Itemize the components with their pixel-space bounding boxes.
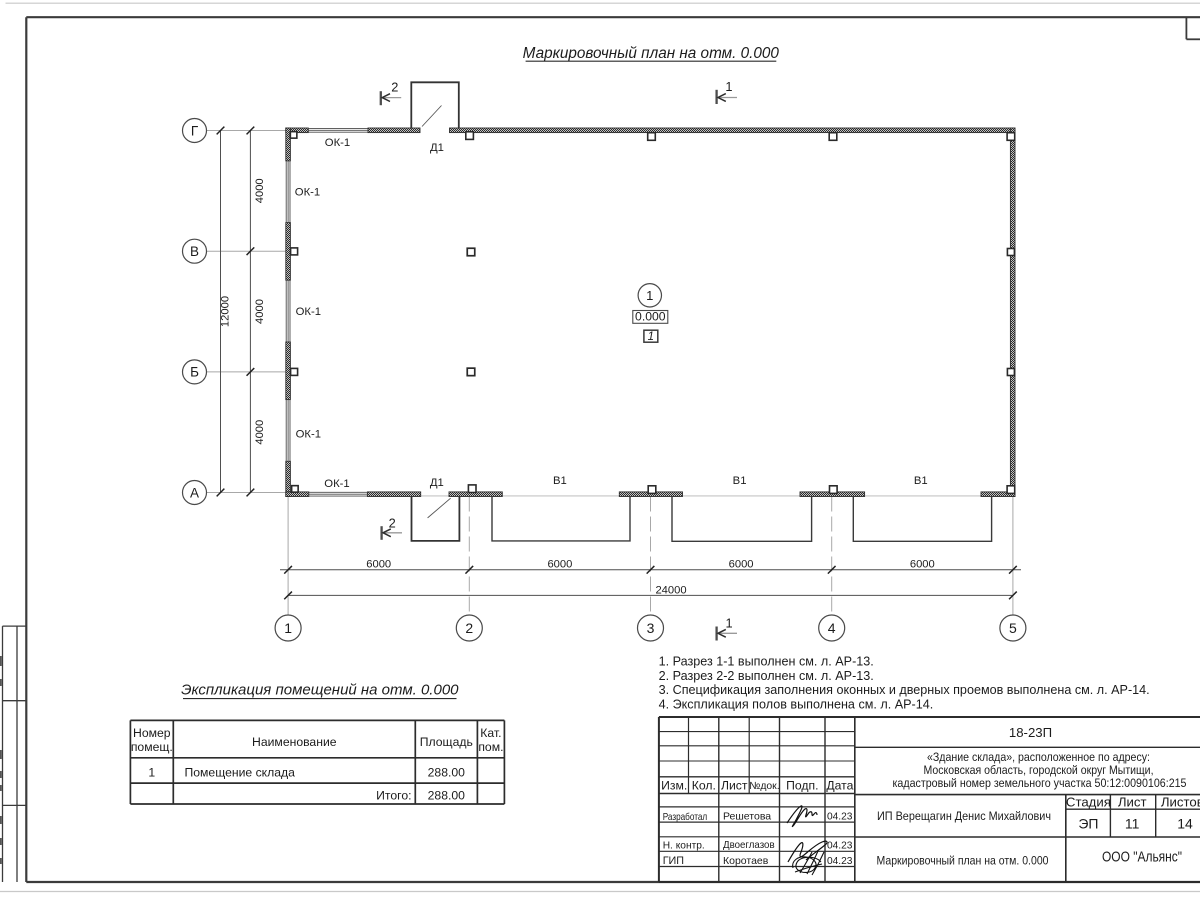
svg-text:24000: 24000 <box>655 585 686 597</box>
svg-text:2. Разрез 2-2 выполнен см. л.: 2. Разрез 2-2 выполнен см. л. АР-13. <box>659 669 874 683</box>
svg-text:1: 1 <box>725 615 732 630</box>
svg-text:Маркировочный план на отм. 0.0: Маркировочный план на отм. 0.000 <box>523 45 780 62</box>
svg-text:04.23: 04.23 <box>827 840 853 851</box>
svg-text:4000: 4000 <box>254 420 266 445</box>
svg-text:4: 4 <box>828 620 836 636</box>
svg-text:ЭП: ЭП <box>1078 816 1098 832</box>
svg-text:Маркировочный план на отм. 0.0: Маркировочный план на отм. 0.000 <box>877 853 1049 867</box>
svg-text:ГИП: ГИП <box>663 855 684 867</box>
svg-text:В: В <box>190 244 199 259</box>
svg-text:1: 1 <box>648 331 654 343</box>
svg-text:Решетова: Решетова <box>723 811 771 823</box>
svg-text:1: 1 <box>646 288 653 303</box>
svg-text:4000: 4000 <box>254 178 266 203</box>
svg-text:2: 2 <box>465 620 473 636</box>
svg-text:14: 14 <box>1177 816 1193 832</box>
svg-text:Разработал: Разработал <box>663 811 708 823</box>
svg-text:пом.: пом. <box>478 740 503 754</box>
svg-text:0.000: 0.000 <box>635 310 666 324</box>
svg-text:Кол.: Кол. <box>692 778 716 792</box>
svg-text:Помещение склада: Помещение склада <box>185 766 296 780</box>
svg-text:Двоеглазов: Двоеглазов <box>723 839 775 851</box>
svg-text:№док.: №док. <box>749 781 779 792</box>
svg-text:5: 5 <box>1009 620 1017 636</box>
svg-text:Итого:: Итого: <box>376 789 411 803</box>
svg-text:4. Экспликация полов выполнена: 4. Экспликация полов выполнена см. л. АР… <box>659 698 934 712</box>
svg-text:2: 2 <box>391 79 398 94</box>
svg-text:А: А <box>190 485 199 500</box>
svg-text:ОК-1: ОК-1 <box>325 137 350 149</box>
svg-text:ООО "Альянс": ООО "Альянс" <box>1102 850 1182 866</box>
svg-text:Площадь: Площадь <box>420 735 473 749</box>
svg-text:288.00: 288.00 <box>428 789 465 803</box>
svg-text:2: 2 <box>389 515 396 530</box>
svg-text:11: 11 <box>1125 816 1140 832</box>
svg-text:6000: 6000 <box>366 558 391 570</box>
svg-text:В1: В1 <box>733 475 747 487</box>
svg-text:288.00: 288.00 <box>428 766 465 780</box>
svg-text:3: 3 <box>647 620 655 636</box>
svg-text:Стадия: Стадия <box>1066 795 1111 810</box>
svg-text:Лист: Лист <box>1118 795 1147 810</box>
svg-text:Н. контр.: Н. контр. <box>663 840 705 851</box>
svg-text:В1: В1 <box>914 475 928 487</box>
svg-text:6000: 6000 <box>547 558 572 570</box>
svg-text:Дата: Дата <box>826 778 853 792</box>
svg-text:Подп.: Подп. <box>786 778 818 792</box>
svg-text:кадастровый номер земельного у: кадастровый номер земельного участка 50:… <box>893 776 1187 790</box>
svg-text:Коротаев: Коротаев <box>723 855 769 867</box>
svg-text:ОК-1: ОК-1 <box>296 306 321 318</box>
svg-text:В1: В1 <box>553 475 567 487</box>
svg-text:3. Спецификация заполнения око: 3. Спецификация заполнения оконных и две… <box>659 683 1150 697</box>
svg-text:Д1: Д1 <box>430 142 444 154</box>
svg-text:12000: 12000 <box>220 296 232 327</box>
svg-text:Экспликация помещений на отм.: Экспликация помещений на отм. 0.000 <box>181 681 459 698</box>
svg-text:6000: 6000 <box>729 558 754 570</box>
svg-text:ИП Верещагин Денис Михайлович: ИП Верещагин Денис Михайлович <box>877 809 1051 823</box>
svg-text:04.23: 04.23 <box>827 812 853 823</box>
svg-text:04.23: 04.23 <box>827 856 853 867</box>
svg-text:ОК-1: ОК-1 <box>295 187 320 199</box>
svg-text:6000: 6000 <box>910 558 935 570</box>
svg-text:Лист: Лист <box>721 778 748 792</box>
svg-text:1: 1 <box>148 766 155 780</box>
svg-text:помещ.: помещ. <box>131 740 173 754</box>
svg-text:Наименование: Наименование <box>252 735 337 749</box>
svg-text:Листов: Листов <box>1161 795 1200 810</box>
svg-text:Кат.: Кат. <box>480 726 501 740</box>
svg-text:4000: 4000 <box>254 299 266 324</box>
svg-text:Г: Г <box>191 123 199 138</box>
svg-text:Б: Б <box>190 365 199 380</box>
svg-text:18-23П: 18-23П <box>1009 725 1052 740</box>
svg-text:1: 1 <box>725 79 732 94</box>
svg-text:ОК-1: ОК-1 <box>324 478 349 490</box>
svg-text:Изм.: Изм. <box>661 778 687 792</box>
svg-text:1: 1 <box>284 620 292 636</box>
svg-text:Номер: Номер <box>133 726 171 740</box>
svg-text:ОК-1: ОК-1 <box>296 429 321 441</box>
svg-text:1. Разрез 1-1 выполнен см. л.: 1. Разрез 1-1 выполнен см. л. АР-13. <box>659 655 874 669</box>
svg-text:Д1: Д1 <box>430 477 444 489</box>
